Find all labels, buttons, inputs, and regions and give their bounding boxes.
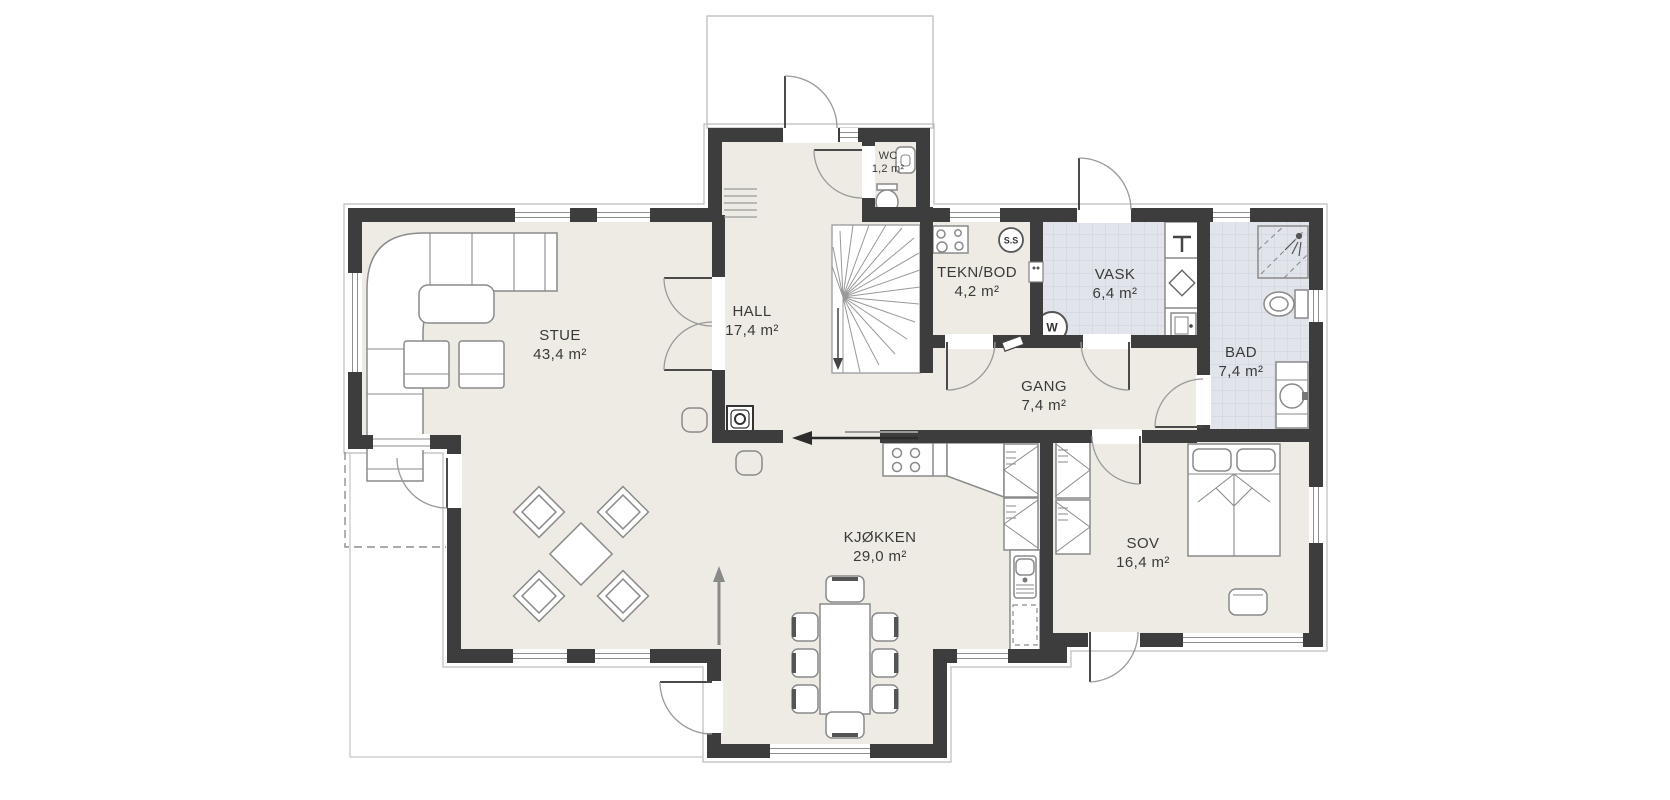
kitchen-sink [1014, 556, 1036, 598]
window [950, 208, 1000, 222]
floor-plan-canvas: S.S W STUE43,4 m² HALL17,4 m² WC1,2 m² T… [0, 0, 1670, 800]
pillow [1193, 449, 1231, 471]
room-label-stue: STUE43,4 m² [533, 326, 587, 364]
appliance [933, 226, 968, 253]
ss-symbol-label: S.S [1004, 236, 1019, 246]
window [597, 208, 650, 222]
fireplace [727, 406, 753, 432]
bench [1229, 589, 1267, 615]
window [1309, 290, 1323, 322]
tekn-fixtures [933, 226, 968, 253]
room-label-vask: VASK6,4 m² [1093, 265, 1138, 303]
room-label-gang: GANG7,4 m² [1021, 377, 1067, 415]
toilet [1264, 290, 1308, 318]
room-label-tekn: TEKN/BOD4,2 m² [937, 263, 1017, 301]
window [513, 649, 567, 663]
vask-exterior-door [1077, 158, 1131, 223]
washer-symbol-label: W [1046, 321, 1058, 335]
entrance-porch-outline [707, 16, 933, 128]
window [1183, 633, 1303, 647]
window [595, 649, 650, 663]
room-label-hall: HALL17,4 m² [725, 302, 779, 340]
window [840, 128, 858, 142]
room-label-sov: SOV16,4 m² [1116, 534, 1170, 572]
dining-table [820, 604, 870, 714]
kitchen-terrace-door [660, 681, 723, 734]
window [515, 208, 570, 222]
window [373, 434, 430, 450]
window [957, 649, 1008, 663]
staircase [832, 225, 920, 373]
window [770, 744, 870, 758]
pillow [1237, 449, 1275, 471]
room-label-wc: WC1,2 m² [872, 150, 904, 176]
armchair [459, 341, 504, 388]
room-label-kjokken: KJØKKEN29,0 m² [844, 528, 917, 566]
entrance-door [783, 76, 838, 143]
window [348, 273, 362, 372]
vanity-sink [1276, 362, 1308, 428]
floor-plan-drawing: S.S W [0, 0, 1670, 800]
wc-toilet-tank [877, 184, 897, 190]
armchair [404, 341, 449, 388]
coffee-table [419, 285, 494, 323]
window [1213, 208, 1250, 222]
wall-niche [1029, 262, 1043, 282]
window [1309, 487, 1323, 543]
sov-exterior-door [1088, 632, 1140, 682]
room-label-bad: BAD7,4 m² [1219, 343, 1264, 381]
